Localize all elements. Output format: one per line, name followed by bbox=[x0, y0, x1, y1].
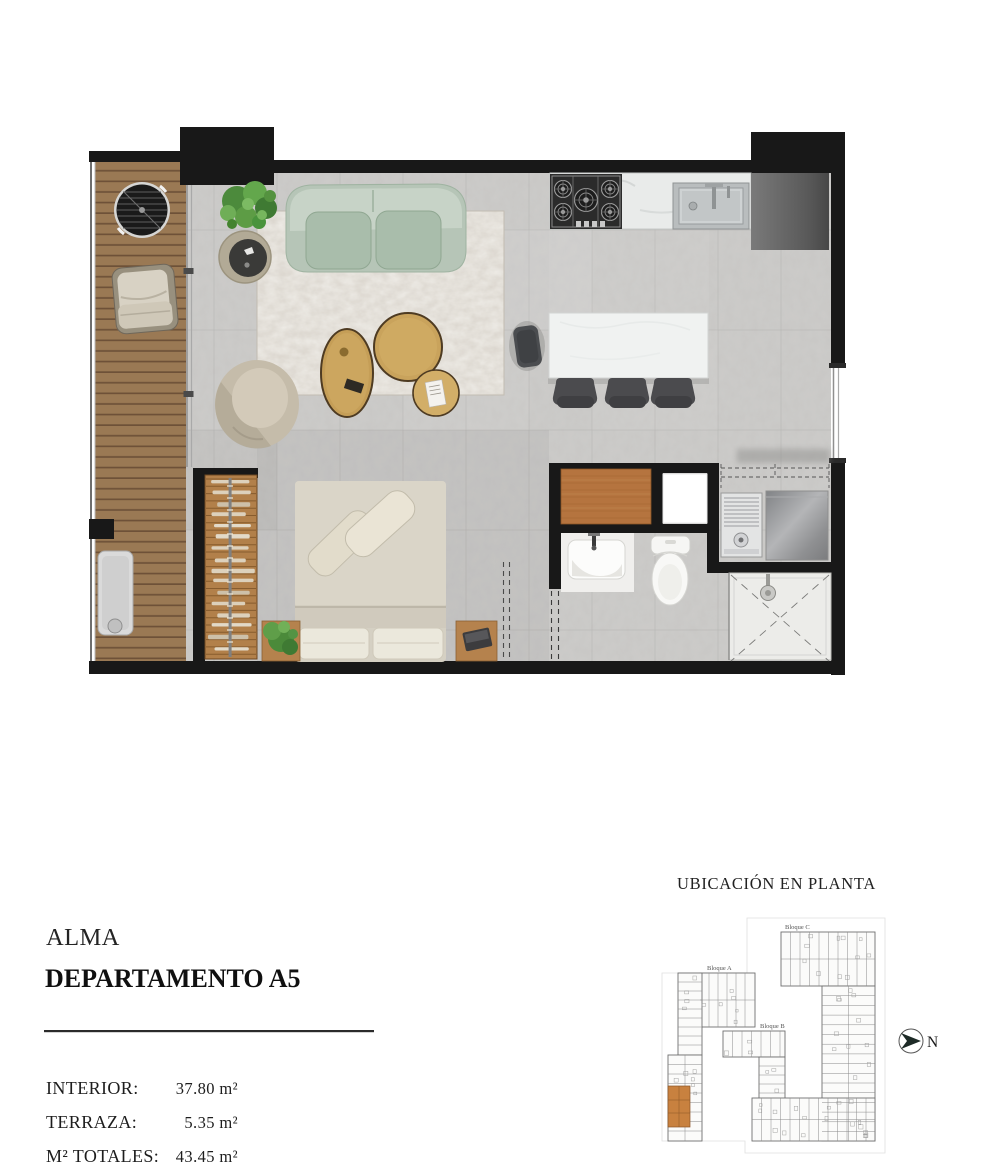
svg-text:UBICACIÓN EN PLANTA: UBICACIÓN EN PLANTA bbox=[677, 874, 876, 893]
svg-text:ALMA: ALMA bbox=[46, 924, 120, 951]
svg-text:37.80 m²: 37.80 m² bbox=[176, 1079, 238, 1098]
svg-text:N: N bbox=[927, 1034, 938, 1051]
svg-text:TERRAZA:: TERRAZA: bbox=[46, 1112, 137, 1132]
svg-text:INTERIOR:: INTERIOR: bbox=[46, 1078, 139, 1098]
svg-text:5.35 m²: 5.35 m² bbox=[184, 1113, 238, 1132]
svg-text:M² TOTALES:: M² TOTALES: bbox=[46, 1146, 159, 1166]
svg-text:Bloque A: Bloque A bbox=[707, 965, 732, 972]
svg-text:43.45 m²: 43.45 m² bbox=[176, 1147, 238, 1166]
svg-text:Bloque B: Bloque B bbox=[760, 1023, 785, 1030]
svg-text:DEPARTAMENTO A5: DEPARTAMENTO A5 bbox=[45, 964, 301, 993]
svg-text:Bloque C: Bloque C bbox=[785, 924, 810, 931]
